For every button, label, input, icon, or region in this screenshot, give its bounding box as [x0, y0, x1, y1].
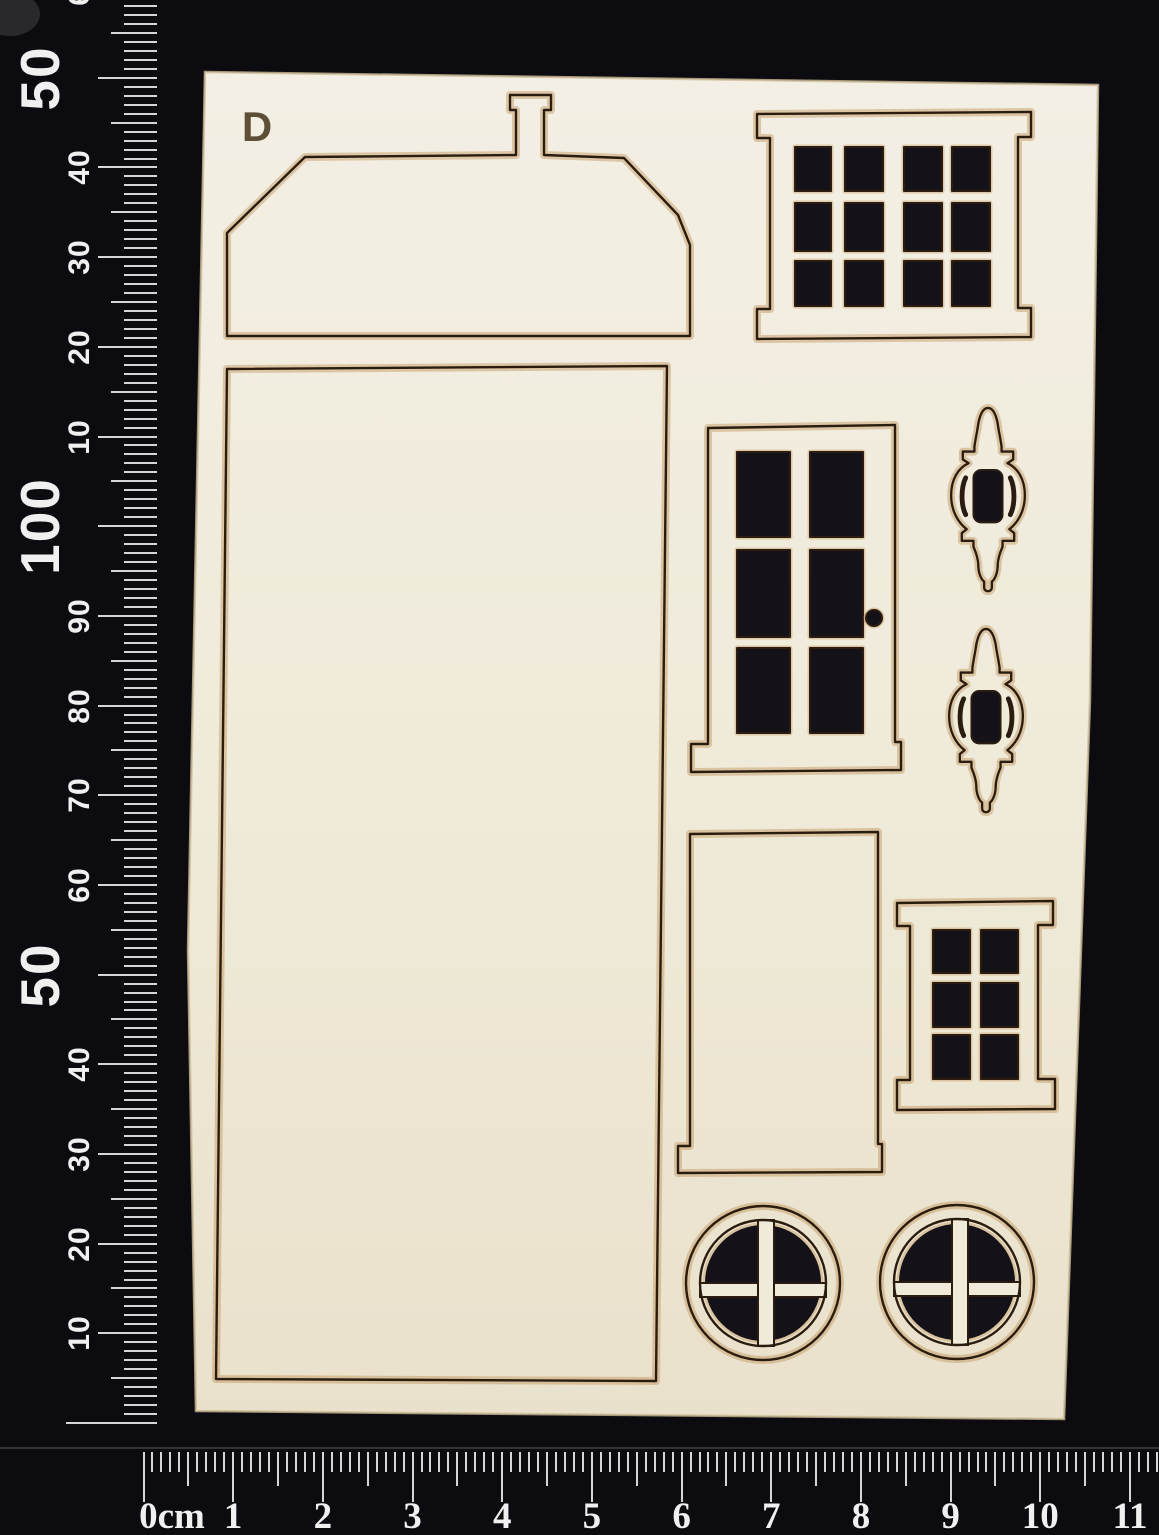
vruler-label: 40 — [63, 150, 97, 185]
hruler-tick — [932, 1452, 934, 1472]
vruler-tick — [124, 1270, 157, 1272]
hruler-tick — [465, 1452, 467, 1472]
hruler-label: 6 — [672, 1495, 691, 1535]
vruler-label: 90 — [63, 598, 97, 633]
hruler-tick — [977, 1452, 979, 1472]
hruler-tick — [456, 1452, 458, 1486]
hruler-tick — [914, 1452, 916, 1472]
vruler-tick — [124, 1126, 157, 1128]
vruler-tick — [124, 1045, 157, 1047]
vruler-tick — [124, 1386, 157, 1388]
hruler-tick — [537, 1452, 539, 1472]
vruler-tick — [124, 86, 157, 88]
vruler-tick — [111, 391, 157, 393]
hruler-tick — [160, 1452, 162, 1472]
vruler-tick — [124, 714, 157, 716]
vruler-tick — [124, 131, 157, 133]
hruler-tick — [304, 1452, 306, 1472]
vruler-tick — [124, 875, 157, 877]
vruler-label: 10 — [63, 419, 97, 454]
vruler-tick — [124, 938, 157, 940]
vruler-tick — [124, 1305, 157, 1307]
vruler-tick — [124, 866, 157, 868]
vruler-tick — [124, 776, 157, 778]
hruler-tick — [1084, 1452, 1086, 1486]
hruler-tick — [214, 1452, 216, 1472]
vruler-tick — [111, 660, 157, 662]
vruler-tick — [124, 1350, 157, 1352]
vruler-tick — [124, 642, 157, 644]
vruler-tick — [124, 220, 157, 222]
vruler-tick — [124, 1261, 157, 1263]
vruler-tick — [98, 794, 157, 796]
hruler-tick — [564, 1452, 566, 1472]
vruler-tick — [124, 758, 157, 760]
vruler-tick — [98, 974, 157, 976]
hruler-tick — [663, 1452, 665, 1472]
vruler-label: 20 — [63, 329, 97, 364]
vruler-tick — [124, 140, 157, 142]
horizontal-ruler-edge — [0, 1447, 1159, 1449]
vruler-tick — [124, 785, 157, 787]
vruler-tick — [124, 1314, 157, 1316]
hruler-tick — [492, 1452, 494, 1472]
vruler-tick — [124, 1234, 157, 1236]
vruler-tick — [124, 265, 157, 267]
vruler-tick — [124, 767, 157, 769]
vruler-tick — [124, 633, 157, 635]
doorknob-hole — [866, 610, 882, 626]
vruler-tick — [124, 893, 157, 895]
vruler-tick — [124, 687, 157, 689]
hruler-tick — [797, 1452, 799, 1472]
vruler-tick — [124, 310, 157, 312]
hruler-label: 3 — [403, 1495, 422, 1535]
vruler-tick — [111, 839, 157, 841]
vruler-tick — [124, 543, 157, 545]
hruler-tick — [385, 1452, 387, 1472]
vruler-tick — [111, 1108, 157, 1110]
hruler-tick — [725, 1452, 727, 1486]
vruler-tick — [124, 1001, 157, 1003]
hruler-tick — [654, 1452, 656, 1472]
vruler-tick — [124, 1081, 157, 1083]
vruler-tick — [124, 1162, 157, 1164]
vruler-tick — [124, 516, 157, 518]
hruler-tick — [1120, 1452, 1122, 1472]
hruler-tick — [573, 1452, 575, 1472]
hruler-tick — [699, 1452, 701, 1472]
hruler-tick — [295, 1452, 297, 1472]
vruler-tick — [124, 830, 157, 832]
hruler-tick — [833, 1452, 835, 1472]
vruler-tick — [124, 1144, 157, 1146]
vruler-tick — [124, 1395, 157, 1397]
hruler-label: 9 — [941, 1495, 960, 1535]
hruler-tick — [349, 1452, 351, 1472]
vruler-tick — [124, 552, 157, 554]
vruler-tick — [124, 507, 157, 509]
hruler-tick — [268, 1452, 270, 1472]
hruler-tick — [519, 1452, 521, 1472]
vruler-tick — [124, 1171, 157, 1173]
hruler-tick — [1003, 1452, 1005, 1472]
vruler-label: 80 — [63, 688, 97, 723]
vruler-tick — [124, 722, 157, 724]
hruler-tick — [851, 1452, 853, 1472]
hruler-tick — [609, 1452, 611, 1472]
vruler-tick — [124, 678, 157, 680]
vruler-tick — [111, 1287, 157, 1289]
hruler-tick — [734, 1452, 736, 1472]
vruler-label: 30 — [63, 1136, 97, 1171]
hruler-tick — [690, 1452, 692, 1472]
vruler-tick — [124, 821, 157, 823]
vruler-tick — [124, 471, 157, 473]
hruler-tick — [707, 1452, 709, 1472]
hruler-tick — [1048, 1452, 1050, 1472]
hruler-tick — [196, 1452, 198, 1472]
hruler-tick — [600, 1452, 602, 1472]
hruler-tick — [1066, 1452, 1068, 1472]
vruler-tick — [124, 113, 157, 115]
hruler-tick — [994, 1452, 996, 1486]
hruler-tick — [1102, 1452, 1104, 1472]
hruler-tick — [959, 1452, 961, 1472]
hruler-tick — [187, 1452, 189, 1486]
hruler-tick — [905, 1452, 907, 1486]
vruler-tick — [124, 382, 157, 384]
hruler-tick — [923, 1452, 925, 1472]
hruler-tick — [286, 1452, 288, 1472]
hruler-tick — [761, 1452, 763, 1472]
vruler-tick — [124, 1009, 157, 1011]
vruler-tick — [111, 749, 157, 751]
hruler-tick — [1147, 1452, 1149, 1472]
vruler-tick — [124, 292, 157, 294]
hruler-tick — [394, 1452, 396, 1472]
vruler-tick — [124, 803, 157, 805]
vruler-tick — [124, 355, 157, 357]
hruler-tick — [896, 1452, 898, 1472]
vruler-tick — [124, 1180, 157, 1182]
vruler-tick — [124, 23, 157, 25]
hruler-tick — [806, 1452, 808, 1472]
vruler-tick — [124, 158, 157, 160]
vruler-tick — [124, 175, 157, 177]
vruler-tick — [124, 1368, 157, 1370]
hruler-tick — [313, 1452, 315, 1472]
vruler-tick — [124, 5, 157, 7]
hruler-tick — [474, 1452, 476, 1472]
vruler-tick — [124, 444, 157, 446]
vruler-tick — [124, 1323, 157, 1325]
hruler-tick — [672, 1452, 674, 1472]
vruler-tick — [124, 1279, 157, 1281]
vruler-tick — [111, 301, 157, 303]
vruler-tick — [124, 1027, 157, 1029]
vruler-tick — [124, 812, 157, 814]
hruler-tick — [1012, 1452, 1014, 1472]
vruler-tick — [124, 992, 157, 994]
vruler-tick — [124, 59, 157, 61]
vruler-tick — [98, 256, 157, 258]
vruler-tick — [111, 1198, 157, 1200]
vruler-tick — [111, 1377, 157, 1379]
hruler-tick — [367, 1452, 369, 1486]
hruler-tick — [716, 1452, 718, 1472]
hruler-tick — [421, 1452, 423, 1472]
vruler-tick — [124, 1225, 157, 1227]
vruler-tick — [124, 1207, 157, 1209]
hruler-tick — [869, 1452, 871, 1472]
vruler-tick — [124, 14, 157, 16]
vruler-tick — [124, 1189, 157, 1191]
vruler-tick — [98, 166, 157, 168]
hruler-tick — [403, 1452, 405, 1472]
vruler-tick — [124, 193, 157, 195]
vruler-tick — [124, 104, 157, 106]
vruler-label: 30 — [63, 239, 97, 274]
hruler-tick — [528, 1452, 530, 1472]
vruler-tick — [111, 1018, 157, 1020]
photo-canvas: D — [0, 0, 1159, 1535]
vruler-tick — [124, 149, 157, 151]
vruler-label: 10 — [63, 1316, 97, 1351]
hruler-label: 1 — [224, 1495, 243, 1535]
vruler-tick — [111, 211, 157, 213]
vruler-label: 20 — [63, 1226, 97, 1261]
vruler-tick — [124, 274, 157, 276]
hruler-label: 4 — [493, 1495, 512, 1535]
vruler-tick — [124, 947, 157, 949]
vruler-tick — [111, 570, 157, 572]
hruler-tick — [376, 1452, 378, 1472]
vruler-tick — [124, 202, 157, 204]
chipboard-photo: D — [0, 0, 1159, 1535]
vruler-tick — [124, 1359, 157, 1361]
hruler-tick — [582, 1452, 584, 1472]
vruler-tick — [124, 453, 157, 455]
vruler-tick — [124, 911, 157, 913]
vruler-tick — [124, 696, 157, 698]
vruler-tick — [124, 624, 157, 626]
vruler-tick — [124, 920, 157, 922]
vruler-tick — [124, 498, 157, 500]
vruler-tick — [124, 902, 157, 904]
vruler-tick — [124, 184, 157, 186]
hruler-label: 10 — [1022, 1495, 1059, 1535]
vruler-tick — [111, 122, 157, 124]
hruler-tick — [555, 1452, 557, 1472]
hruler-label: 8 — [852, 1495, 871, 1535]
vruler-tick — [98, 884, 157, 886]
hruler-tick — [1138, 1452, 1140, 1472]
vruler-tick — [124, 561, 157, 563]
vruler-tick — [124, 41, 157, 43]
vruler-tick — [124, 68, 157, 70]
hruler-label: 0cm — [139, 1495, 205, 1535]
vruler-tick — [66, 1422, 157, 1424]
hruler-tick — [752, 1452, 754, 1472]
hruler-tick — [429, 1452, 431, 1472]
vruler-tick — [124, 965, 157, 967]
vruler-tick — [124, 740, 157, 742]
hruler-tick — [151, 1452, 153, 1472]
vruler-tick — [124, 1216, 157, 1218]
hruler-tick — [483, 1452, 485, 1472]
hruler-tick — [941, 1452, 943, 1472]
piece-round-window-right — [880, 1205, 1034, 1359]
vruler-tick — [124, 1296, 157, 1298]
hruler-tick — [788, 1452, 790, 1472]
vruler-tick — [124, 1054, 157, 1056]
hruler-tick — [1156, 1452, 1158, 1472]
vruler-tick — [98, 615, 157, 617]
hruler-tick — [618, 1452, 620, 1472]
hruler-tick — [259, 1452, 261, 1472]
hruler-tick — [169, 1452, 171, 1472]
vruler-label: 50 — [8, 942, 72, 1007]
hruler-tick — [815, 1452, 817, 1486]
hruler-tick — [636, 1452, 638, 1486]
hruler-tick — [510, 1452, 512, 1472]
vruler-tick — [98, 525, 157, 527]
vruler-tick — [124, 400, 157, 402]
hruler-tick — [1075, 1452, 1077, 1472]
vruler-tick — [124, 1117, 157, 1119]
vruler-tick — [124, 1252, 157, 1254]
vruler-tick — [124, 669, 157, 671]
vruler-tick — [124, 534, 157, 536]
vruler-tick — [98, 1332, 157, 1334]
hruler-tick — [438, 1452, 440, 1472]
hruler-tick — [645, 1452, 647, 1472]
horizontal-ruler: 0cm1234567891011 — [0, 1445, 1159, 1535]
hruler-tick — [178, 1452, 180, 1472]
vruler-tick — [124, 247, 157, 249]
vruler-tick — [124, 848, 157, 850]
hruler-label: 5 — [583, 1495, 602, 1535]
hruler-tick — [205, 1452, 207, 1472]
vruler-tick — [124, 1135, 157, 1137]
hruler-tick — [358, 1452, 360, 1472]
vruler-tick — [124, 1036, 157, 1038]
vruler-tick — [124, 651, 157, 653]
vruler-label: 40 — [63, 1047, 97, 1082]
vruler-tick — [124, 238, 157, 240]
vruler-tick — [124, 409, 157, 411]
vruler-tick — [124, 1404, 157, 1406]
vruler-tick — [111, 480, 157, 482]
vruler-tick — [124, 462, 157, 464]
hruler-tick — [340, 1452, 342, 1472]
board-letter: D — [242, 103, 272, 150]
vruler-tick — [98, 1243, 157, 1245]
vruler-tick — [98, 705, 157, 707]
vruler-tick — [98, 1153, 157, 1155]
hruler-tick — [985, 1452, 987, 1472]
vruler-tick — [98, 346, 157, 348]
vruler-tick — [124, 1099, 157, 1101]
vruler-tick — [124, 1413, 157, 1415]
vruler-tick — [124, 283, 157, 285]
hruler-tick — [779, 1452, 781, 1472]
hruler-tick — [447, 1452, 449, 1472]
hruler-tick — [1030, 1452, 1032, 1472]
hruler-tick — [824, 1452, 826, 1472]
hruler-label: 7 — [762, 1495, 781, 1535]
vruler-tick — [98, 436, 157, 438]
vruler-tick — [124, 427, 157, 429]
hruler-tick — [1111, 1452, 1113, 1472]
hruler-tick — [546, 1452, 548, 1486]
hruler-tick — [842, 1452, 844, 1472]
vruler-label: 70 — [63, 778, 97, 813]
vruler-tick — [124, 328, 157, 330]
hruler-tick — [1057, 1452, 1059, 1472]
vruler-tick — [124, 1072, 157, 1074]
vruler-tick — [98, 1063, 157, 1065]
hruler-label: 11 — [1112, 1495, 1147, 1535]
vruler-label: 50 — [8, 45, 72, 110]
hruler-tick — [968, 1452, 970, 1472]
vruler-label: 100 — [8, 477, 72, 575]
hruler-tick — [241, 1452, 243, 1472]
hruler-tick — [1021, 1452, 1023, 1472]
hruler-tick — [277, 1452, 279, 1486]
hruler-tick — [223, 1452, 225, 1472]
hruler-label: 2 — [314, 1495, 333, 1535]
vruler-tick — [124, 731, 157, 733]
hruler-tick — [878, 1452, 880, 1472]
hruler-tick — [627, 1452, 629, 1472]
vruler-tick — [124, 857, 157, 859]
vruler-label: 60 — [63, 867, 97, 902]
piece-round-window-left — [686, 1206, 840, 1360]
hruler-tick — [743, 1452, 745, 1472]
vruler-tick — [124, 597, 157, 599]
vruler-tick — [124, 418, 157, 420]
hruler-tick — [1093, 1452, 1095, 1472]
vruler-tick — [124, 50, 157, 52]
vruler-tick — [124, 229, 157, 231]
vruler-tick — [124, 983, 157, 985]
vruler-tick — [111, 929, 157, 931]
vruler-tick — [124, 606, 157, 608]
vruler-tick — [124, 956, 157, 958]
vruler-tick — [124, 337, 157, 339]
vruler-tick — [124, 1341, 157, 1343]
vruler-tick — [124, 588, 157, 590]
vruler-tick — [111, 32, 157, 34]
hruler-tick — [887, 1452, 889, 1472]
vertical-ruler: 102030405060708090100102030405060 — [0, 0, 172, 1449]
hruler-tick — [331, 1452, 333, 1472]
vruler-tick — [124, 373, 157, 375]
vruler-tick — [124, 364, 157, 366]
vruler-tick — [124, 1090, 157, 1092]
vruler-tick — [124, 319, 157, 321]
vruler-tick — [124, 95, 157, 97]
vruler-label: 60 — [63, 0, 97, 6]
vruler-tick — [124, 579, 157, 581]
vruler-tick — [98, 77, 157, 79]
hruler-tick — [250, 1452, 252, 1472]
vruler-tick — [124, 489, 157, 491]
